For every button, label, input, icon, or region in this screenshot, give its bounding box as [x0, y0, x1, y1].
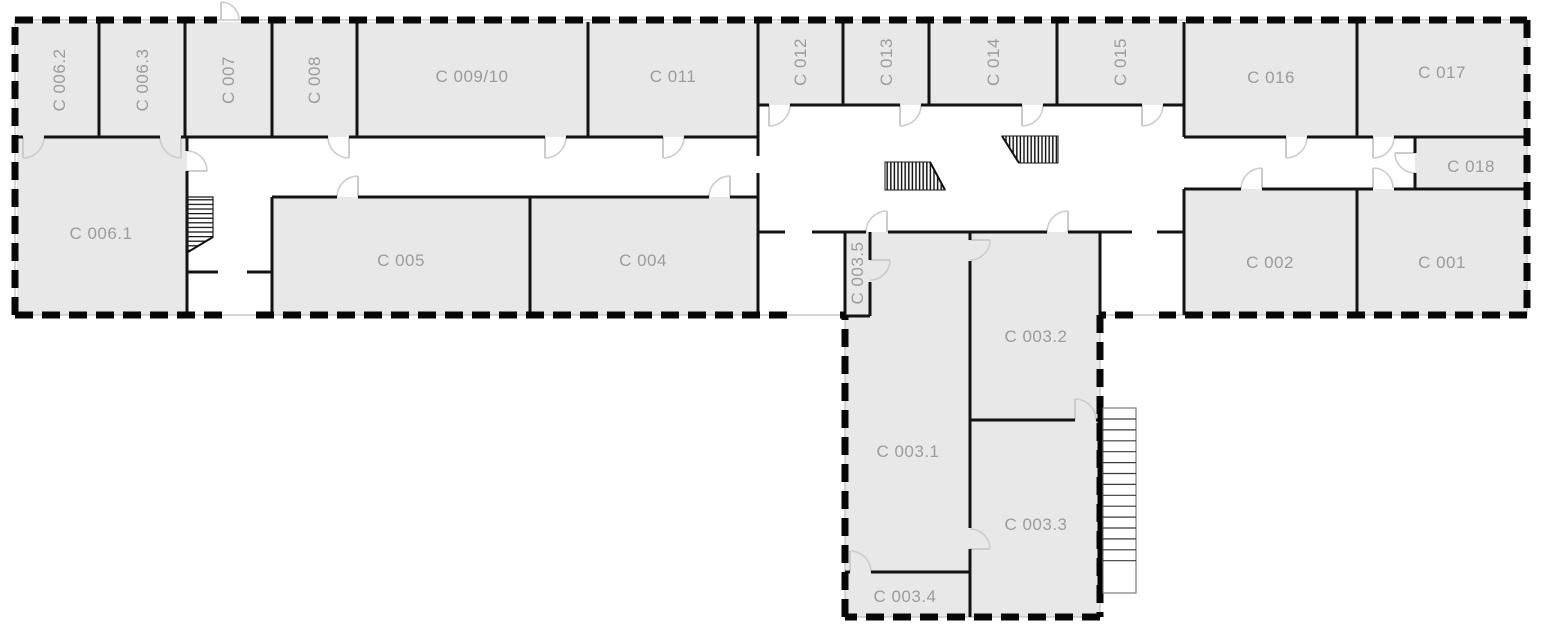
room-label-c014: C 014 [984, 38, 1003, 86]
room-label-c013: C 013 [877, 38, 896, 86]
room-label-c008: C 008 [305, 56, 324, 104]
room-label-c003-1: C 003.1 [876, 442, 939, 461]
room-label-c012: C 012 [791, 38, 810, 86]
door-swing [187, 151, 207, 171]
room-label-c009-10: C 009/10 [436, 67, 509, 86]
door-swing [328, 137, 349, 158]
door-swing [1395, 153, 1415, 173]
floor-plan-page: C 001C 002C 003.1C 003.2C 003.3C 003.4C … [0, 0, 1551, 634]
room-label-c006-1: C 006.1 [69, 224, 132, 243]
door-swing [663, 137, 684, 158]
room-label-c018: C 018 [1447, 157, 1495, 176]
room-label-c001: C 001 [1418, 253, 1466, 272]
rooms-layer [17, 22, 1527, 617]
room-label-c007: C 007 [219, 56, 238, 104]
door-swing [221, 2, 239, 20]
door-swing [1022, 105, 1043, 126]
room-c001 [1357, 189, 1527, 315]
room-label-c017: C 017 [1418, 63, 1466, 82]
room-label-c003-2: C 003.2 [1004, 327, 1067, 346]
door-swing [900, 105, 921, 126]
door-swing [1286, 137, 1307, 158]
door-swing [1373, 137, 1394, 158]
door-swing [545, 137, 566, 158]
room-label-c006-2: C 006.2 [50, 48, 69, 111]
hall-stairs-hatch-right [1002, 136, 1058, 163]
door-swing [1142, 105, 1163, 126]
room-label-c003-3: C 003.3 [1004, 515, 1067, 534]
room-label-c003-4: C 003.4 [873, 587, 936, 606]
door-swing [1241, 168, 1262, 189]
interior-stairs-symbol [188, 197, 213, 252]
door-swing [1047, 211, 1068, 232]
room-label-c005: C 005 [377, 251, 425, 270]
room-label-c004: C 004 [619, 251, 667, 270]
door-swing [1373, 168, 1393, 188]
door-swing [769, 105, 790, 126]
hall-stairs-hatch-left [885, 162, 945, 190]
room-c002 [1184, 189, 1357, 315]
floor-plan-canvas: C 001C 002C 003.1C 003.2C 003.3C 003.4C … [0, 0, 1551, 634]
room-area-c003-wing [845, 232, 1100, 617]
room-label-c015: C 015 [1111, 38, 1130, 86]
room-label-c003-5: C 003.5 [848, 241, 867, 304]
room-label-c006-3: C 006.3 [133, 48, 152, 111]
door-swing [866, 211, 887, 232]
exterior-stairs-symbol [1100, 404, 1136, 597]
room-label-c002: C 002 [1246, 253, 1294, 272]
room-label-c016: C 016 [1247, 68, 1295, 87]
door-swing [337, 176, 358, 197]
room-label-c011: C 011 [650, 67, 697, 86]
door-swing [709, 176, 730, 197]
